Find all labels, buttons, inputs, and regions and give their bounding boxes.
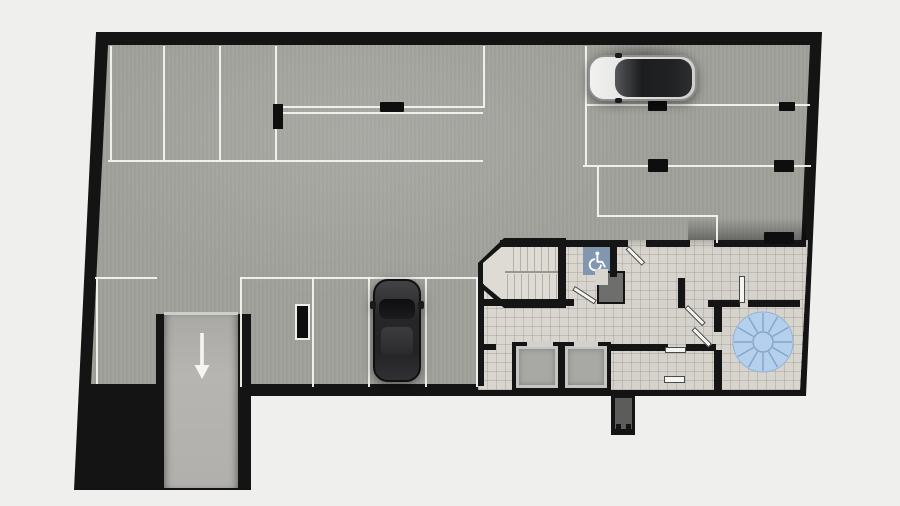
column [273,104,283,129]
wheel-stop [774,160,794,172]
stall-line [483,46,485,108]
stall-line [597,167,599,217]
elevator-2-frame [565,346,607,388]
floorplan-canvas [0,0,900,506]
elevator-1-cab [519,349,555,385]
elevator-1-sill [527,341,553,347]
topright-room-bottom-wall-1 [708,300,740,307]
wheel-stop [779,102,795,111]
stall-line [95,277,157,279]
ramp-left-wall [156,314,164,398]
parked-car-dark [373,279,421,382]
vestibule-landing-notch [595,269,608,285]
stair-flight-upper [513,245,559,272]
stair-landing-divider [505,271,561,273]
door-leaf [664,376,685,383]
wheel-stop [764,232,794,244]
corridor-bottom-wall-1 [610,344,668,351]
stall-line [277,112,483,114]
corridor-bottom-wall-2 [686,344,716,351]
car-mirror [370,301,376,309]
core-left-stub-wall [484,344,496,350]
right-divider-wall-lower [714,350,722,390]
stall-line [110,46,112,160]
stall-line [108,160,483,162]
stall-line [96,277,98,384]
elevator-shaft-2 [561,342,611,392]
elevator-shaft-1 [512,342,562,392]
stair-flight-lower [507,274,559,301]
egress-step-1 [616,424,621,431]
stall-line [585,104,810,106]
stall-line [368,277,370,387]
stall-line [585,46,587,166]
elevator-1-frame [516,346,558,388]
car-mirror [615,98,622,103]
ramp-down-arrow-icon [193,333,211,379]
under-stair-wall [478,299,574,306]
stall-line [163,46,165,160]
parked-car-silver [588,55,697,101]
wheel-stop [648,159,668,172]
car-mirror [615,53,622,58]
topright-room-bottom-wall-2 [748,300,800,307]
wheel-stop [648,101,667,111]
car-mirror [418,301,424,309]
stall-line [219,46,221,160]
stall-line [597,215,716,217]
turntable-fan [731,310,795,374]
mid-vertical-wall [678,278,685,308]
wheel-stop [380,102,404,112]
stall-line [425,277,427,387]
core-top-wall-2 [646,240,690,247]
egress-step-2 [626,424,631,431]
stall-line [240,277,242,387]
car-windshield [379,299,415,319]
stall-line [275,46,277,160]
stall-line [716,215,718,243]
door-leaf [739,276,745,303]
stall-line [240,277,477,279]
stairwell-floor [483,243,561,303]
stairwell-right-wall [558,240,566,306]
stall-line [312,277,314,387]
door-leaf [665,347,686,353]
car-roof [381,327,413,355]
stall-line [476,277,478,387]
elevator-2-sill [574,341,598,347]
core-left-wall [478,284,484,386]
ramp-threshold-line [164,312,238,315]
vestibule-stub-wall [610,243,617,277]
car-roof-glass [615,59,692,97]
elevator-2-cab [568,349,604,385]
column [295,304,310,340]
